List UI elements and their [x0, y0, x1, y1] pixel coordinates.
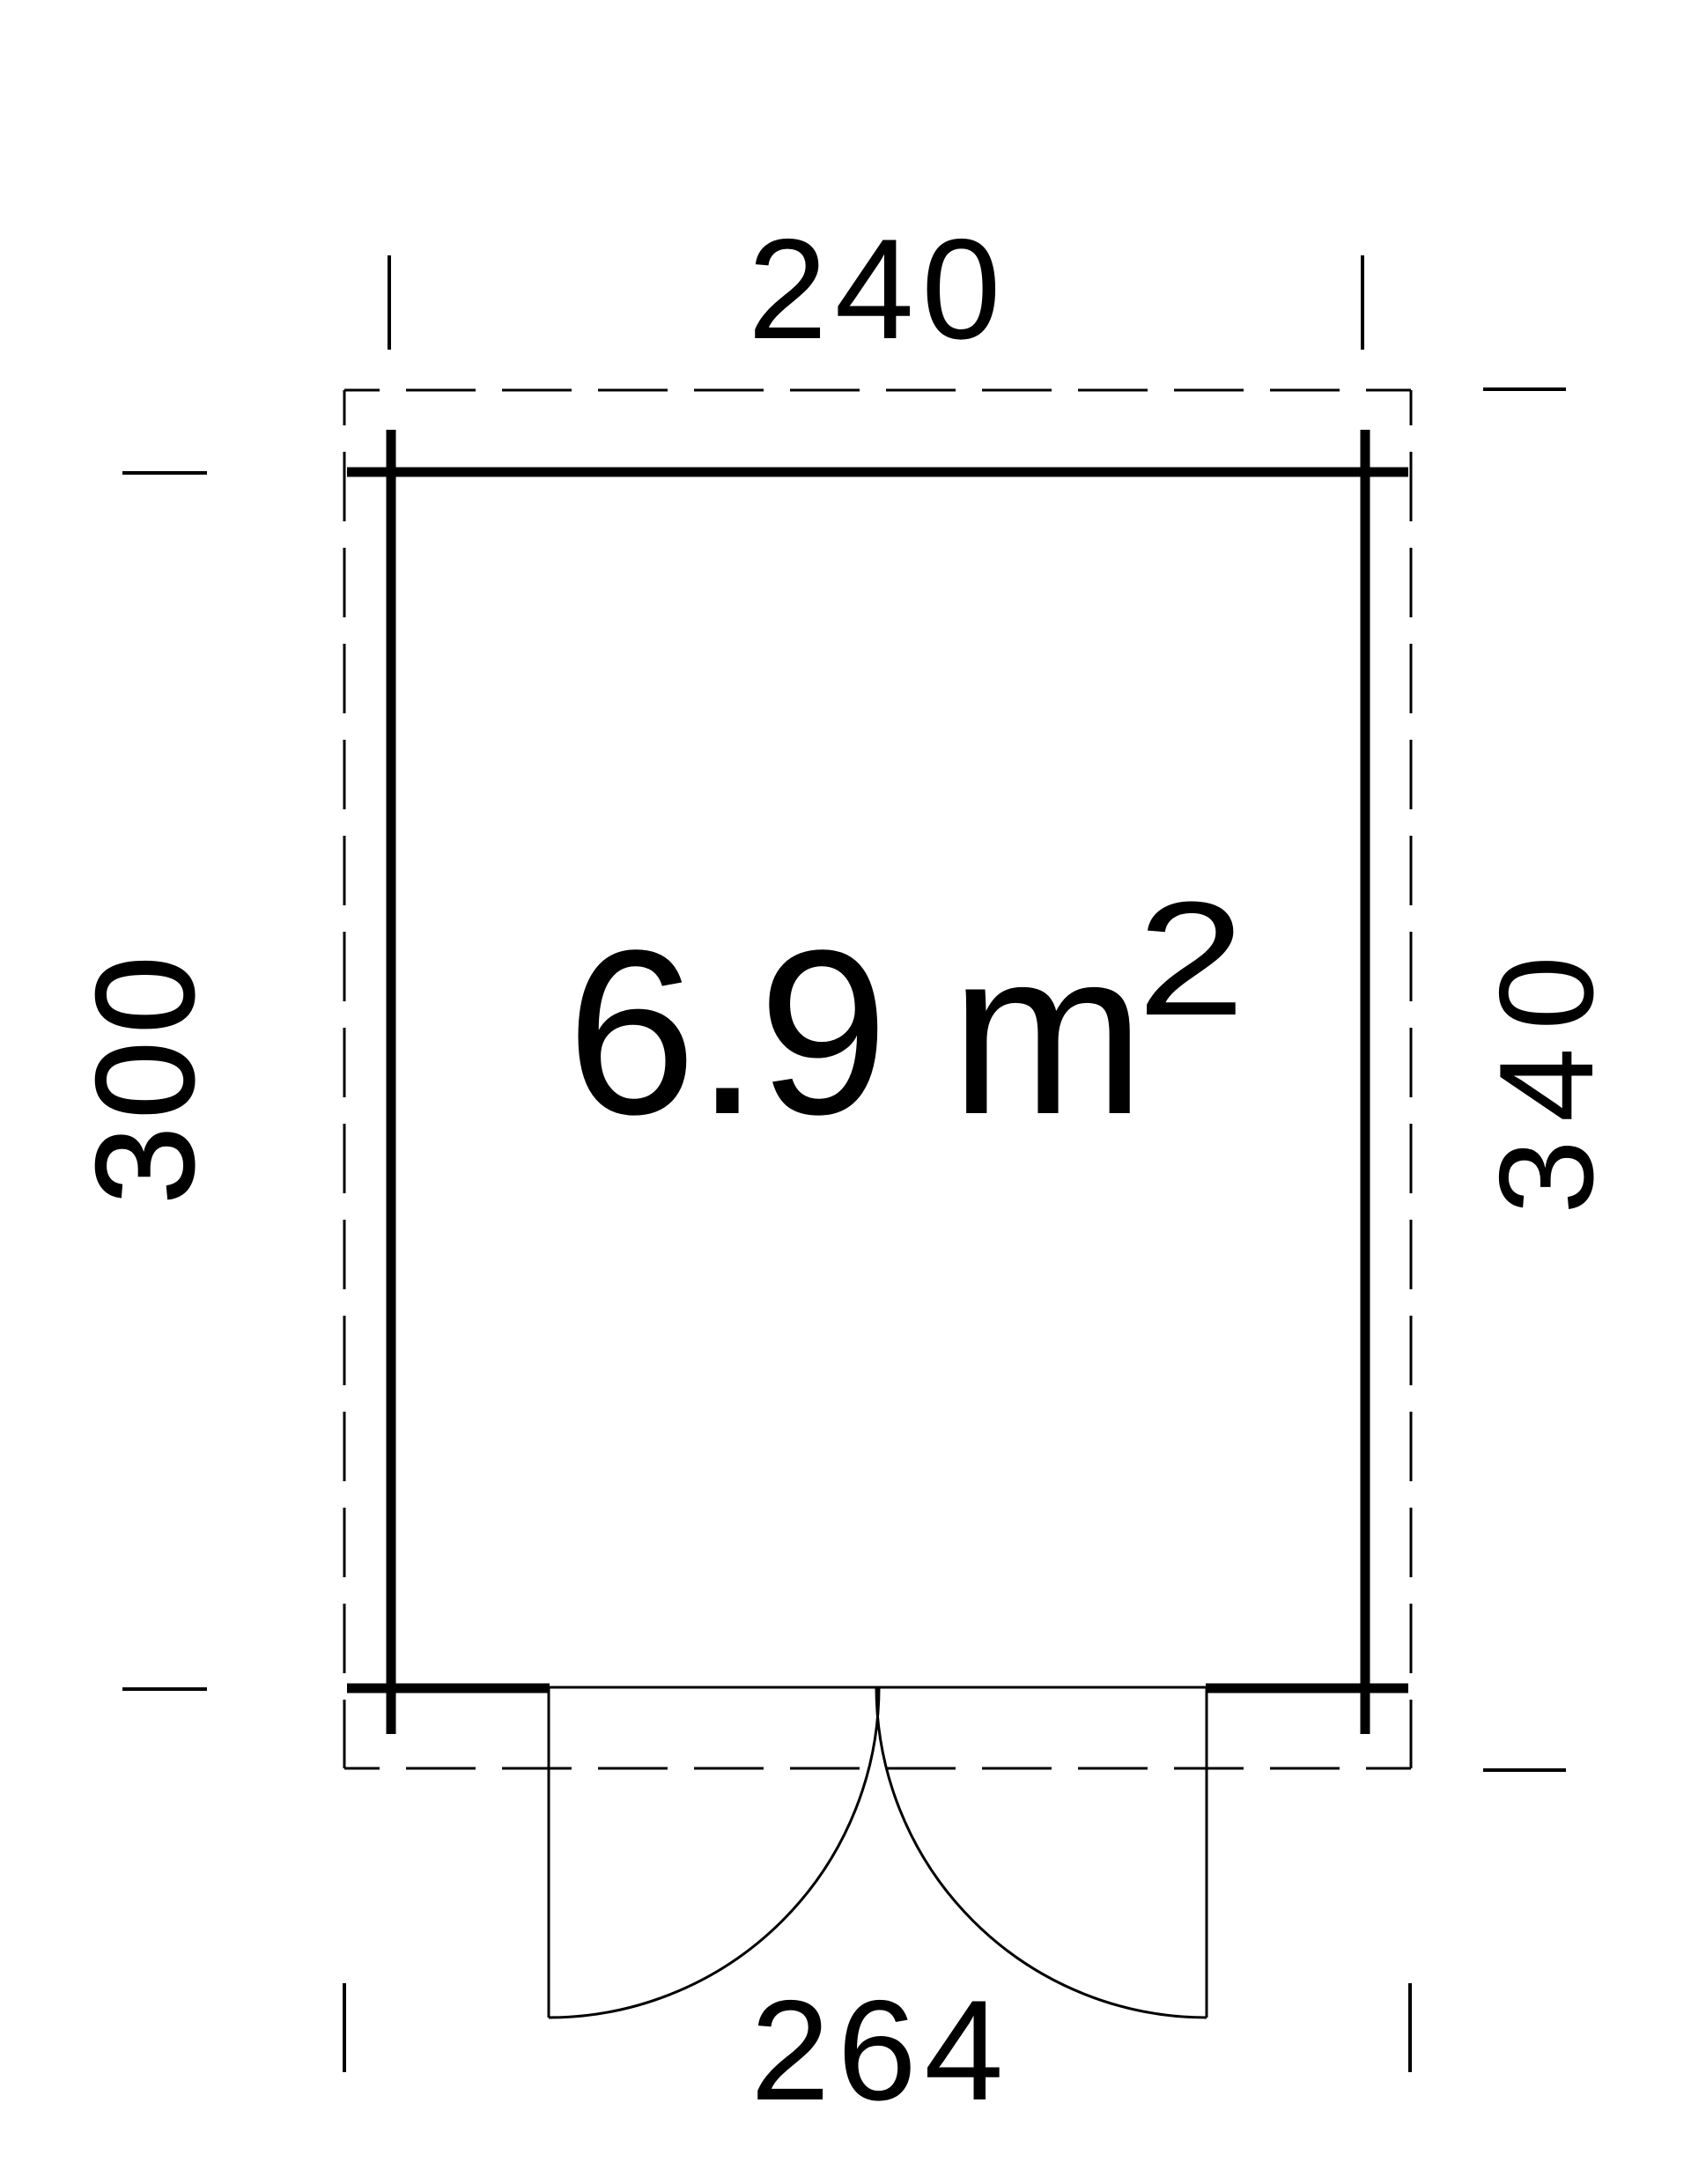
svg-text:2: 2 [1137, 868, 1245, 1050]
svg-text:240: 240 [748, 210, 1008, 369]
svg-text:300: 300 [68, 948, 223, 1205]
svg-text:264: 264 [750, 1971, 1011, 2130]
svg-text:6.9 m: 6.9 m [566, 902, 1143, 1163]
svg-text:340: 340 [1472, 938, 1621, 1214]
